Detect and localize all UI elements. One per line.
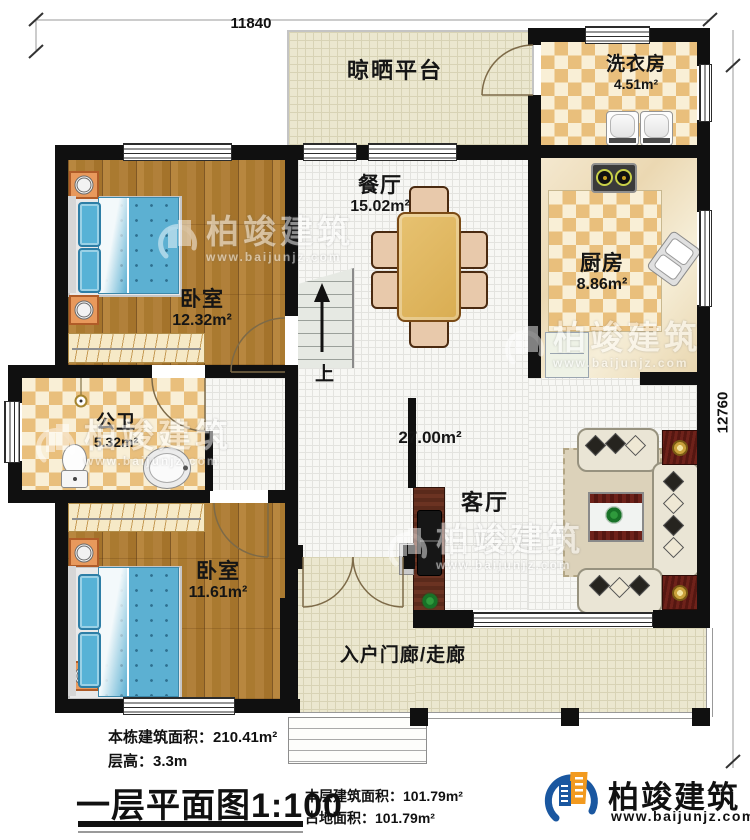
wall [697,28,710,66]
room-label-kitchen: 厨房 8.86m² [566,252,638,295]
coffee-table-edge [590,494,642,503]
wall [8,490,210,503]
bathroom-sink [143,447,191,489]
window [368,143,457,161]
wall [205,431,213,491]
room-label-living: 客厅 [450,490,520,515]
brand-logo-icon [542,766,606,830]
wall [357,145,368,160]
wall [528,28,541,45]
wall [640,372,710,385]
floor-drying-platform [287,30,534,149]
wall [528,95,541,150]
room-name: 公卫 [80,412,152,434]
window [699,210,712,307]
coffee-table-edge [590,531,642,540]
staircase [298,268,354,368]
wall [697,120,710,212]
wall [653,610,710,628]
room-name: 卧室 [178,560,258,584]
building-total-value: 210.41m² [213,729,277,746]
room-area: 5.32m² [80,434,152,450]
washer-panel [643,138,670,143]
room-label-corridor: 入户门廊/走廊 [333,645,473,667]
wall [55,503,68,713]
wall [268,490,298,503]
entry-post [403,545,415,569]
window [303,143,357,161]
washer-panel [609,138,636,143]
window [699,64,712,122]
end-table [662,575,698,610]
building-total-label: 本栋建筑面积： [108,729,213,746]
wall [55,699,123,713]
title-underline-thin [78,831,303,833]
room-area: 15.02m² [340,198,420,216]
dining-table [397,212,461,322]
floor-area-value: 101.79m² [403,788,463,804]
window [4,401,20,463]
end-table [662,430,698,465]
footprint-value: 101.79m² [375,810,435,826]
window [123,697,235,715]
porch-column [692,708,710,726]
room-name: 客厅 [450,490,520,515]
wall [285,145,298,316]
wall [8,365,152,378]
fridge [545,332,589,378]
wall [697,305,710,380]
floor-porch-south [415,628,708,712]
room-area: 4.51m² [598,76,674,92]
wardrobe [68,503,205,532]
porch-edge-right [706,628,713,717]
floor-area: 本层建筑面积：101.79m² [305,786,463,806]
room-label-bedroom-bottom: 卧室 11.61m² [178,560,258,603]
stove-burner [596,169,613,186]
building-total-area: 本栋建筑面积：210.41m² [108,726,277,747]
room-name: 晾晒平台 [330,58,460,83]
wall [697,378,710,612]
room-area: 8.86m² [566,276,638,294]
window [585,26,650,44]
footprint-label: 占地面积： [305,810,375,826]
washing-machine [606,111,639,146]
wall [280,598,295,712]
plant [421,592,439,610]
pillow [78,202,101,247]
entry-steps [288,717,427,764]
floor-height: 层高：3.3m [108,750,187,771]
wardrobe [68,333,205,363]
room-name: 洗衣房 [598,54,674,76]
room-name: 卧室 [162,288,242,312]
wall [55,145,68,373]
stove-burner [615,169,632,186]
window [123,143,232,161]
wall [285,372,298,503]
wall [205,365,298,378]
floor-plan: 11840 12760 晾晒平台 洗衣房 4.51m² 餐厅 15.02m² 厨… [0,0,750,840]
page-title: 一层平面图1:100 [76,778,343,827]
dimension-top: 11840 [215,15,287,32]
plant [605,506,623,524]
porch-column [410,708,428,726]
toilet-tank [61,470,88,488]
dimension-right: 12760 [715,378,732,448]
room-area: 27.00m² [392,428,468,448]
tv-screen [417,510,442,576]
floor-area-label: 本层建筑面积： [305,788,403,804]
room-label-bathroom: 公卫 5.32m² [80,412,152,450]
washing-machine [640,111,673,146]
bed-headboard [68,566,76,696]
room-name: 入户门廊/走廊 [333,645,473,667]
floor-porch-entry [295,557,415,712]
room-name: 厨房 [566,252,638,276]
bed-sheet-fold [99,568,129,696]
wall [8,365,22,403]
bed-sheet-fold [99,198,129,293]
up-label: 上 [300,364,350,386]
floor-height-value: 3.3m [153,753,187,770]
brand-url: www.baijunjz.com [611,808,750,824]
room-name: 餐厅 [340,174,420,198]
bed-quilt [98,567,179,697]
nightstand [69,171,99,199]
nightstand [69,295,99,325]
bed-quilt [98,197,179,294]
pillow [78,248,101,293]
stove [591,163,637,193]
room-area: 11.61m² [178,584,258,602]
entry-post [291,545,303,569]
floor-height-label: 层高： [108,753,153,770]
window [473,612,653,627]
room-label-laundry: 洗衣房 4.51m² [598,54,674,92]
porch-column [561,708,579,726]
pillow [78,632,101,688]
title-text: 一层平面图 [76,787,251,825]
title-underline [78,821,303,827]
stairs-up-label: 上 [300,364,350,386]
wall [528,145,710,158]
wall [528,158,541,378]
nightstand [69,538,99,567]
footprint-area: 占地面积：101.79m² [305,808,435,828]
room-label-dining: 餐厅 15.02m² [340,174,420,217]
washer-lid [610,114,635,138]
room-label-bedroom-top: 卧室 12.32m² [162,288,242,331]
room-label-drying-platform: 晾晒平台 [330,58,460,83]
pillow [78,574,101,630]
wall [413,610,473,628]
living-area-value: 27.00m² [392,428,468,448]
room-area: 12.32m² [162,312,242,330]
bed-headboard [68,196,76,293]
washer-lid [644,114,669,138]
